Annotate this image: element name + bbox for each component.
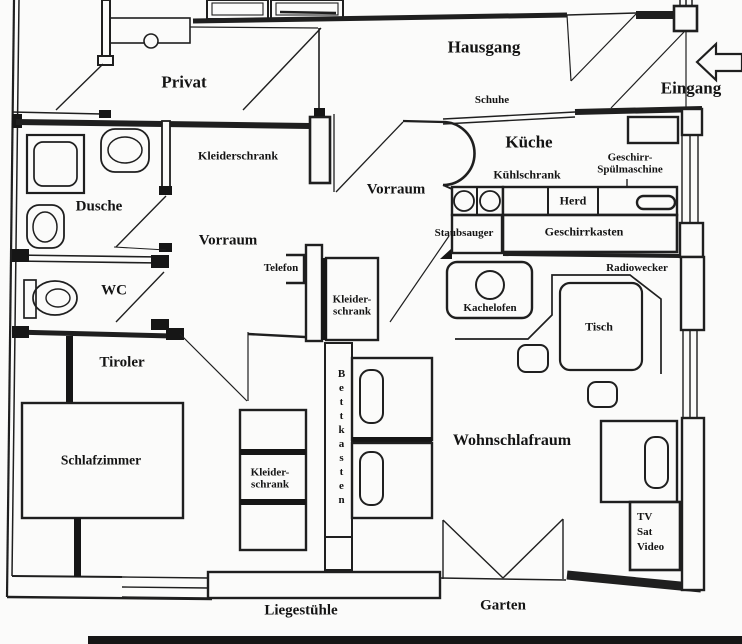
bed [352,358,432,440]
room-label-wohnschlafraum: Wohnschlafraum [453,432,571,450]
vorraum-door-pillar [310,117,330,183]
french-door [443,520,503,578]
label-kleiderschrank-unten: Kleider- schrank [251,467,290,492]
label-geschirrkasten: Geschirrkasten [545,225,624,238]
shower-room [12,121,172,268]
twin-beds [352,358,432,518]
label-klunten-line1: Kleider- [251,467,290,479]
privat-door [56,64,103,110]
wohnraum-door [390,236,449,322]
entrance-arrow-icon [697,44,742,80]
label-herd: Herd [560,194,587,207]
room-label-eingang: Eingang [661,78,721,97]
window-right-lower [683,330,697,418]
room-label-vorraum-unten: Vorraum [199,233,258,250]
label-bettkasten: Bettkasten [336,368,347,508]
label-geschirr-line1: Geschirr- [597,152,662,164]
label-kachelofen: Kachelofen [463,302,516,314]
privat-wall [102,0,110,58]
french-door [503,519,563,578]
label-tv-line1: TV [637,510,664,525]
room-label-kueche: Küche [505,132,552,151]
label-tv-line3: Video [637,540,664,555]
basin-icon [144,34,158,48]
room-label-tiroler: Tiroler [99,355,144,372]
label-tisch: Tisch [585,320,613,333]
label-liegestuehle: Liegestühle [264,603,337,620]
label-kleiderschrank-mitte: Kleider- schrank [333,294,372,319]
toilet-cistern [24,280,36,318]
room-label-vorraum-oben: Vorraum [367,182,426,199]
floor-plan: Privat Hausgang Eingang Küche Vorraum Vo… [0,0,742,644]
right-wall [680,109,704,590]
hausgang-door [567,15,571,81]
floor-plan-drawing [0,0,742,644]
room-label-wc: WC [101,283,127,300]
room-label-dusche: Dusche [76,199,123,216]
room-label-schlafzimmer: Schlafzimmer [61,452,141,467]
entrance-pillar [674,6,697,31]
shower-tray [27,135,84,193]
kitchen-counter [503,187,677,215]
room-label-garten: Garten [480,598,526,615]
label-tv-line2: Sat [637,525,664,540]
window-bottom-left [122,577,208,598]
kitchen-door-arc [443,122,475,185]
deck-chair-terrace [208,572,440,598]
room-label-privat: Privat [161,72,206,91]
bedroom-door [180,334,247,401]
window-right-upper [682,135,698,223]
shower-door [116,196,166,247]
scan-edge-bar [88,636,742,644]
bed [601,421,677,502]
label-schuhe: Schuhe [475,94,509,106]
label-telefon: Telefon [264,262,298,274]
label-staubsauger: Staubsauger [435,227,494,239]
dishwasher-unit [628,117,678,143]
label-radiowecker: Radiowecker [606,262,668,274]
room-label-hausgang: Hausgang [448,37,521,56]
label-geschirrspuelmaschine: Geschirr- Spülmaschine [597,152,662,177]
wc-room [12,272,184,340]
label-geschirr-line2: Spülmaschine [597,164,662,176]
label-klunten-line2: schrank [251,479,290,491]
label-kuehlschrank: Kühlschrank [493,168,560,181]
stool [518,345,548,372]
label-klmitte-line1: Kleider- [333,294,372,306]
label-klmitte-line2: schrank [333,306,372,318]
garden-door-sill [440,578,566,580]
label-kleiderschrank-oben: Kleiderschrank [198,149,278,162]
stool [588,382,617,407]
label-tv-sat-video: TV Sat Video [637,510,664,555]
